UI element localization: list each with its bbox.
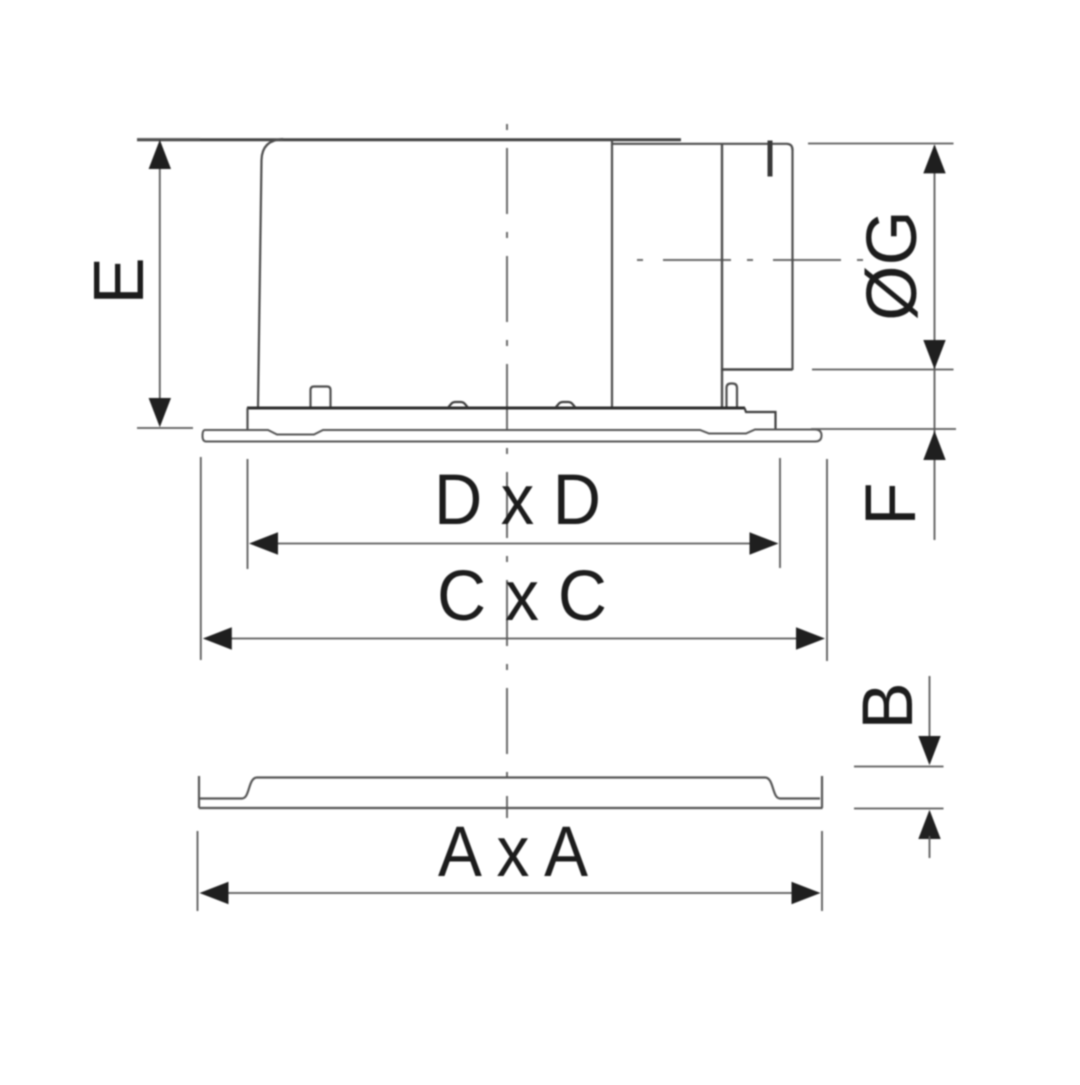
svg-text:ØG: ØG	[853, 210, 932, 320]
svg-text:F: F	[852, 482, 931, 525]
svg-text:D x D: D x D	[434, 461, 601, 540]
svg-text:E: E	[80, 257, 159, 304]
svg-text:B: B	[849, 682, 928, 729]
svg-text:A x A: A x A	[438, 813, 589, 892]
svg-text:C x C: C x C	[437, 557, 607, 636]
